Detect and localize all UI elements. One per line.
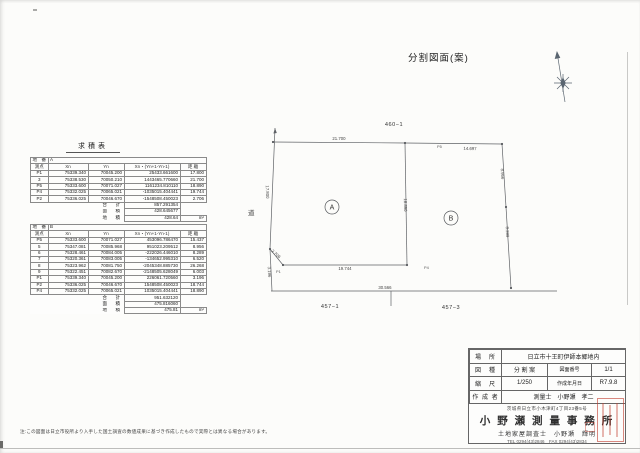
lot-label: 地 番 [31,225,49,231]
lot-number-south-east: 457−3 [442,305,460,311]
parcel-area-value: 428.64 [124,215,180,221]
road-label: 道 [248,208,255,217]
point-p1-label: P1 [276,269,281,274]
scan-mark [0,441,3,448]
parcel-b-label: B [449,216,454,223]
personal-seal [585,422,595,432]
title-block: 場 所 日立市十王町伊師本郷地内 図 種 分 割 案 図面番号 1/1 縮 尺 … [468,348,626,444]
company-seal [597,398,624,442]
point-p4-label: P4 [424,265,430,270]
dim-west-lower: 3.196 [267,266,272,278]
dim-east-lower: 8.289 [505,226,511,238]
line-arrowhead [273,128,276,134]
dim-east-upper: 8.956 [500,168,506,180]
drawing-type-value: 分 割 案 [502,363,548,377]
parcel-a-label: A [330,205,335,212]
lot-number-south-west: 457−1 [321,304,339,310]
point-p5-label: P5 [437,144,442,149]
parcel-area-label: 地 積 [31,215,125,221]
area-table-b: 地 番B 測点 Xn Yn Xn・(Yn+1-Yn-1) 距 離 P575333… [30,224,207,314]
area-unit: m² [180,308,206,314]
scale-value: 1/250 [502,377,548,391]
note-text: 注:この図面は日立市役所より入手した国土調査の数値成果に基づき作成したもので実際… [20,429,270,435]
lot-label: 地 番 [31,158,49,164]
dim-top-left: 21.700 [332,136,346,141]
drawing-type-label: 図 種 [470,363,502,377]
lot-number-north: 460−1 [385,122,403,128]
location-value: 日立市十王町伊師本郷地内 [502,350,626,364]
location-label: 場 所 [470,350,502,364]
author-label: 作 成 者 [470,390,502,404]
dim-parcel-a-south: 19.744 [338,266,352,271]
title-block-table: 場 所 日立市十王町伊師本郷地内 図 種 分 割 案 図面番号 1/1 縮 尺 … [469,349,626,404]
page-title: 分割図面(案) [408,50,469,64]
scan-edge-line [627,52,628,305]
dim-west: 17.800 [265,185,270,199]
dim-diagonal: 2.706 [270,248,282,259]
dim-top-right: 14.697 [463,146,477,151]
parcel-area-value: 475.81 [124,308,180,314]
drawing-number-value: 1/1 [592,363,626,377]
date-label: 作成年月日 [548,377,592,391]
north-boundary-line [273,142,502,144]
parcel-drawing: A B 460−1 457−1 457−3 道 P5 P4 P1 21.700 … [235,100,575,325]
drawing-number-label: 図面番号 [548,363,592,377]
scale-label: 縮 尺 [470,377,502,391]
east-boundary-line [502,144,511,288]
area-table-heading: 求積表 [66,141,120,153]
scan-bottom-line [0,448,640,449]
dim-divider: 18.890 [403,198,408,212]
parcel-area-label: 地 積 [31,308,125,314]
area-table-a: 地 番A 測点 Xn Yn Xn・(Yn+1-Yn-1) 距 離 P175339… [30,157,207,222]
scanned-survey-sheet: 分割図面(案) 求積表 地 番A 測点 Xn Yn Xn・(Yn+1-Yn-1)… [0,0,640,453]
scan-speck [33,9,37,11]
dim-road: 30.566 [378,285,392,290]
date-value: R7.9.8 [592,377,626,391]
area-unit: m² [180,215,206,221]
